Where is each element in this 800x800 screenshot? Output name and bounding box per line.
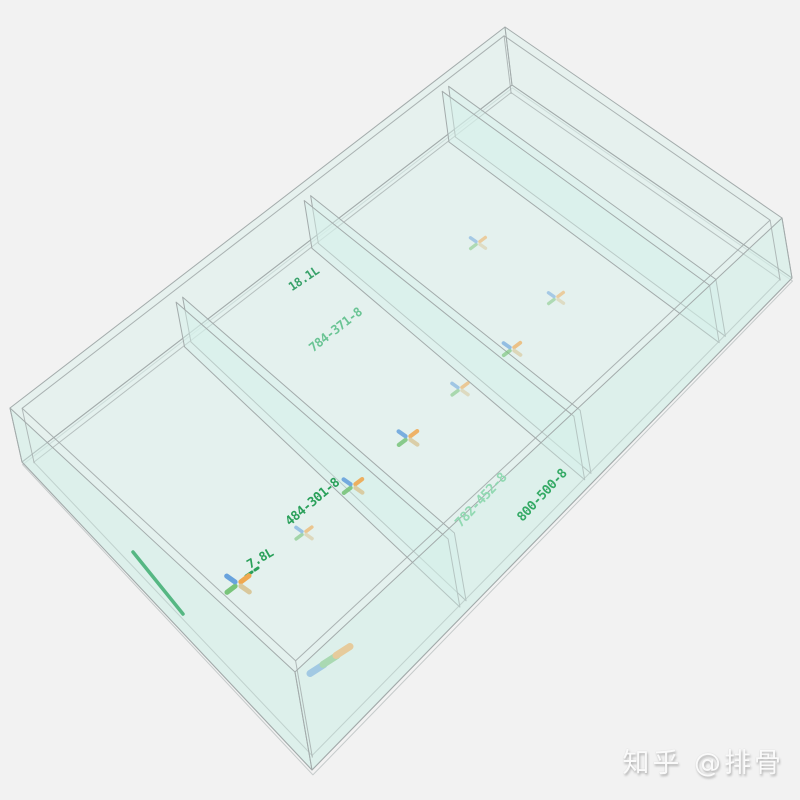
3d-viewport[interactable]: 18.1L784-371-8484-301-8782-452-8800-500-… bbox=[0, 0, 800, 800]
watermark: 知乎 @排骨 bbox=[622, 741, 784, 780]
